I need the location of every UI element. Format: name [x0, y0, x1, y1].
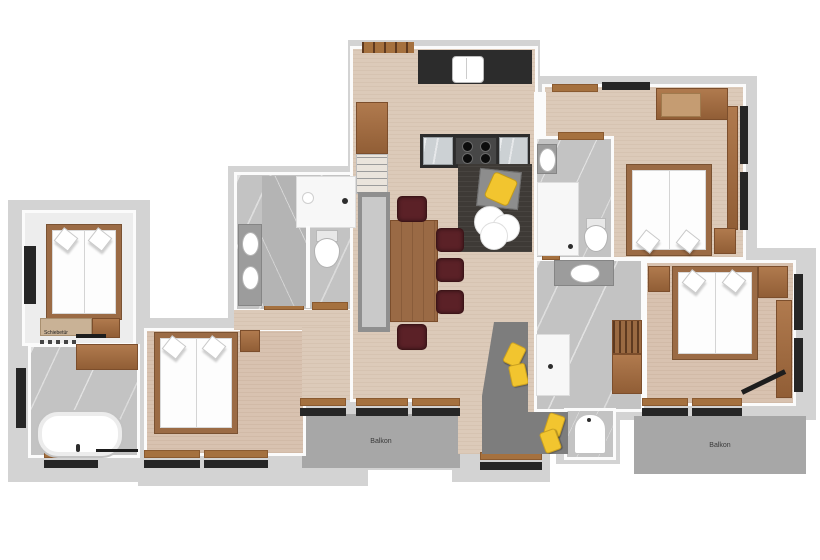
toilet-middle	[314, 230, 338, 266]
window-sill	[204, 450, 268, 458]
shower-head	[342, 198, 348, 204]
window-sill	[412, 398, 460, 406]
kitchen-sink	[452, 56, 484, 83]
sofa-pillow	[508, 362, 529, 387]
window-bathroom-tub	[16, 368, 26, 428]
window-sill	[144, 450, 200, 458]
bed-split	[196, 339, 197, 427]
wc-flush	[587, 418, 591, 422]
door-gap-bedroom-top-right	[534, 92, 546, 138]
wardrobe-bath-tub	[76, 344, 138, 370]
partition-wall	[306, 226, 310, 308]
tall-cabinet	[356, 102, 388, 154]
window-bedroom-tr-right-2	[740, 172, 748, 230]
dresser-br-right	[758, 266, 788, 298]
window-sill	[356, 398, 408, 406]
dining-chair	[397, 196, 427, 222]
window-sill	[642, 398, 688, 406]
sliding-door-panel	[76, 334, 106, 338]
balcony-right: Balkon	[634, 416, 806, 474]
nightstand-top-right	[714, 228, 736, 254]
double-bed-top-right	[626, 164, 712, 256]
cabinet-right-bath	[612, 354, 642, 394]
wall-edge	[96, 449, 138, 452]
double-bed-bottom-right	[672, 266, 758, 360]
sideboard-top	[362, 197, 386, 327]
toilet-ensuite	[584, 218, 606, 250]
washbasin-middle-1	[242, 232, 259, 256]
shower-right	[536, 334, 570, 396]
coffee-table	[480, 222, 508, 250]
nightstand-br-left	[648, 266, 670, 292]
window-bedroom-br-right-1	[794, 274, 803, 330]
wardrobe-br-right-wall	[776, 300, 792, 398]
window-hall-3	[412, 408, 460, 416]
wardrobe-strip-right	[727, 106, 738, 230]
dining-chair	[436, 228, 464, 252]
stove-burner	[480, 153, 491, 164]
door-threshold-ensuite	[558, 132, 604, 140]
toilet-bowl	[584, 225, 608, 252]
balcony-center-label: Balkon	[370, 438, 391, 445]
dining-chair	[436, 290, 464, 314]
shower-head	[568, 244, 573, 249]
slatted-cabinet	[612, 320, 642, 354]
window-sill	[300, 398, 346, 406]
washbasin-right	[570, 264, 600, 283]
window-bedroom-br-1	[642, 408, 688, 416]
stove-burner	[480, 141, 491, 152]
sliding-door-track	[40, 340, 80, 344]
window-bedroom-tr-top	[602, 82, 650, 90]
double-bed-top-left	[46, 224, 122, 320]
sliding-door-label: Schiebetür	[44, 331, 68, 336]
stove-burner	[462, 141, 473, 152]
dining-chair	[397, 324, 427, 350]
window-bottom-left-3	[204, 460, 268, 468]
door-threshold-bath-middle-right	[312, 302, 348, 310]
balcony-center: Balkon	[302, 414, 460, 468]
window-bedroom-top-left	[24, 246, 36, 304]
balcony-right-label: Balkon	[709, 442, 730, 449]
toilet-bowl	[314, 238, 340, 268]
window-sill	[692, 398, 742, 406]
bathtub-faucet	[76, 444, 80, 452]
sideboard-gray	[358, 192, 390, 332]
dining-chair	[436, 258, 464, 282]
dining-table	[390, 220, 438, 322]
window-bedroom-br-right-2	[794, 338, 803, 392]
bed-split	[669, 171, 670, 249]
wardrobe-panel	[661, 93, 701, 117]
shower-drain-dot	[548, 364, 553, 369]
window-hall-1	[300, 408, 346, 416]
window-bedroom-br-2	[692, 408, 742, 416]
open-shelf	[356, 154, 388, 194]
stove	[455, 137, 497, 165]
bed-split	[84, 231, 85, 313]
wardrobe-top-right	[656, 88, 728, 120]
window-hall-2	[356, 408, 408, 416]
shower-drain	[302, 192, 314, 204]
double-bed-bottom-left	[154, 332, 238, 434]
washbasin-middle-2	[242, 266, 259, 290]
entry-door	[362, 42, 414, 53]
window-bottom-left-2	[144, 460, 200, 468]
window-bedroom-tr-right-1	[740, 106, 748, 164]
island-counter-right	[499, 137, 528, 165]
window-sill	[552, 84, 598, 92]
bed-split	[715, 273, 716, 353]
window-bottom-left-1	[44, 460, 98, 468]
nightstand-bottom-left	[240, 330, 260, 352]
window-sofa-nook	[480, 462, 542, 470]
washbasin-ensuite	[539, 148, 556, 172]
stove-burner	[462, 153, 473, 164]
island-counter-left	[423, 137, 453, 165]
floor-plan: Balkon Balkon	[0, 0, 820, 560]
kitchen-sink-divider	[466, 58, 467, 79]
